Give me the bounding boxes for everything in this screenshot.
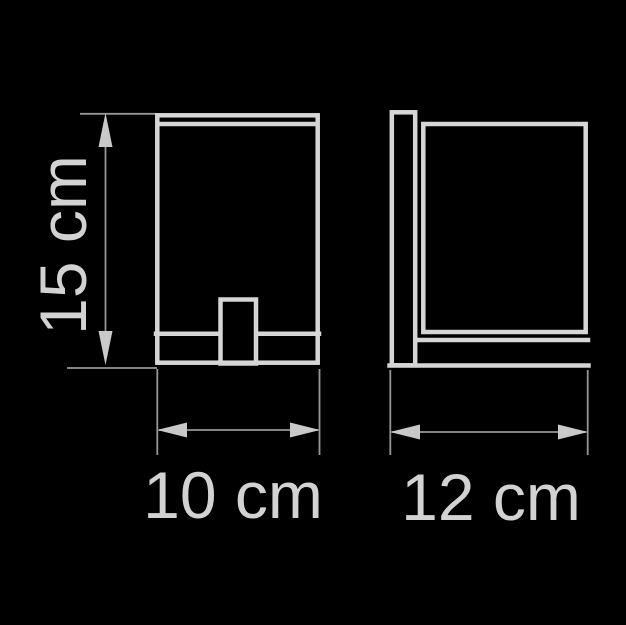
dimension-lines-group: [67, 114, 588, 455]
product-outlines-group: [156, 112, 589, 365]
height-arrow-down-icon: [99, 331, 113, 365]
depth-dimension-label: 12 cm: [401, 460, 581, 534]
width-arrow-left-icon: [157, 423, 187, 438]
depth-arrow-right-icon: [558, 425, 588, 440]
front-view: [156, 115, 319, 363]
width-dimension-label: 10 cm: [143, 458, 323, 532]
side-view: [390, 112, 589, 365]
dimension-arrows-group: [99, 113, 589, 440]
height-arrow-up-icon: [99, 113, 113, 147]
side-view-outline: [423, 124, 585, 332]
height-dimension-label: 15 cm: [26, 155, 100, 335]
dimension-diagram-page: 15 cm 10 cm 12 cm: [0, 0, 626, 625]
depth-arrow-left-icon: [390, 425, 420, 440]
side-mounting-plate: [392, 112, 415, 365]
front-button-knob: [221, 300, 257, 364]
width-arrow-right-icon: [290, 423, 320, 438]
product-dimension-diagram: 15 cm 10 cm 12 cm: [0, 0, 626, 625]
